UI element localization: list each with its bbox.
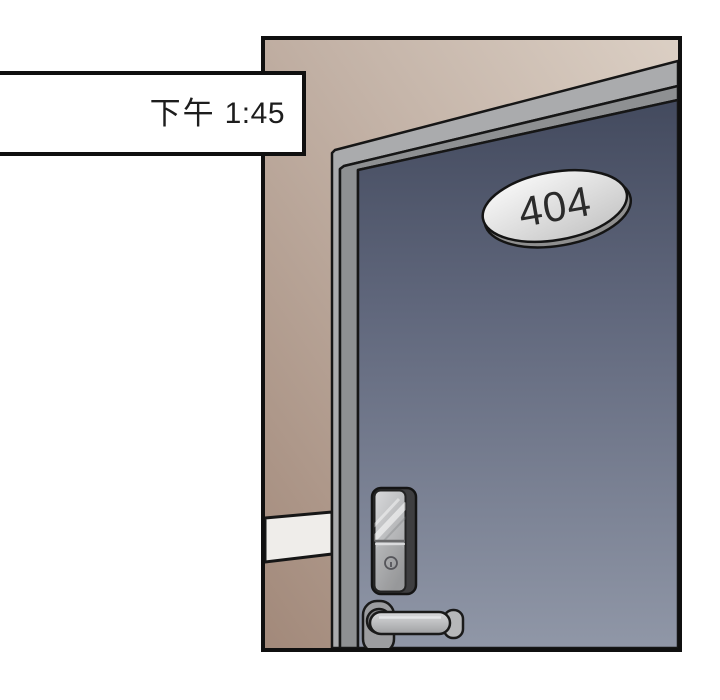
comic-panel: 404 [261,36,682,652]
wall-baseboard-stripe [265,512,332,562]
door-lock [371,488,416,594]
timestamp-time-label: 1:45 [225,99,285,129]
timestamp-box: 下午 1:45 [0,71,306,156]
lock-lower-shade [376,546,404,590]
webtoon-page: 404 [0,0,720,700]
door-scene: 404 [265,40,678,648]
handle-lever [370,612,450,634]
timestamp-period-label: 下午 [150,98,216,129]
